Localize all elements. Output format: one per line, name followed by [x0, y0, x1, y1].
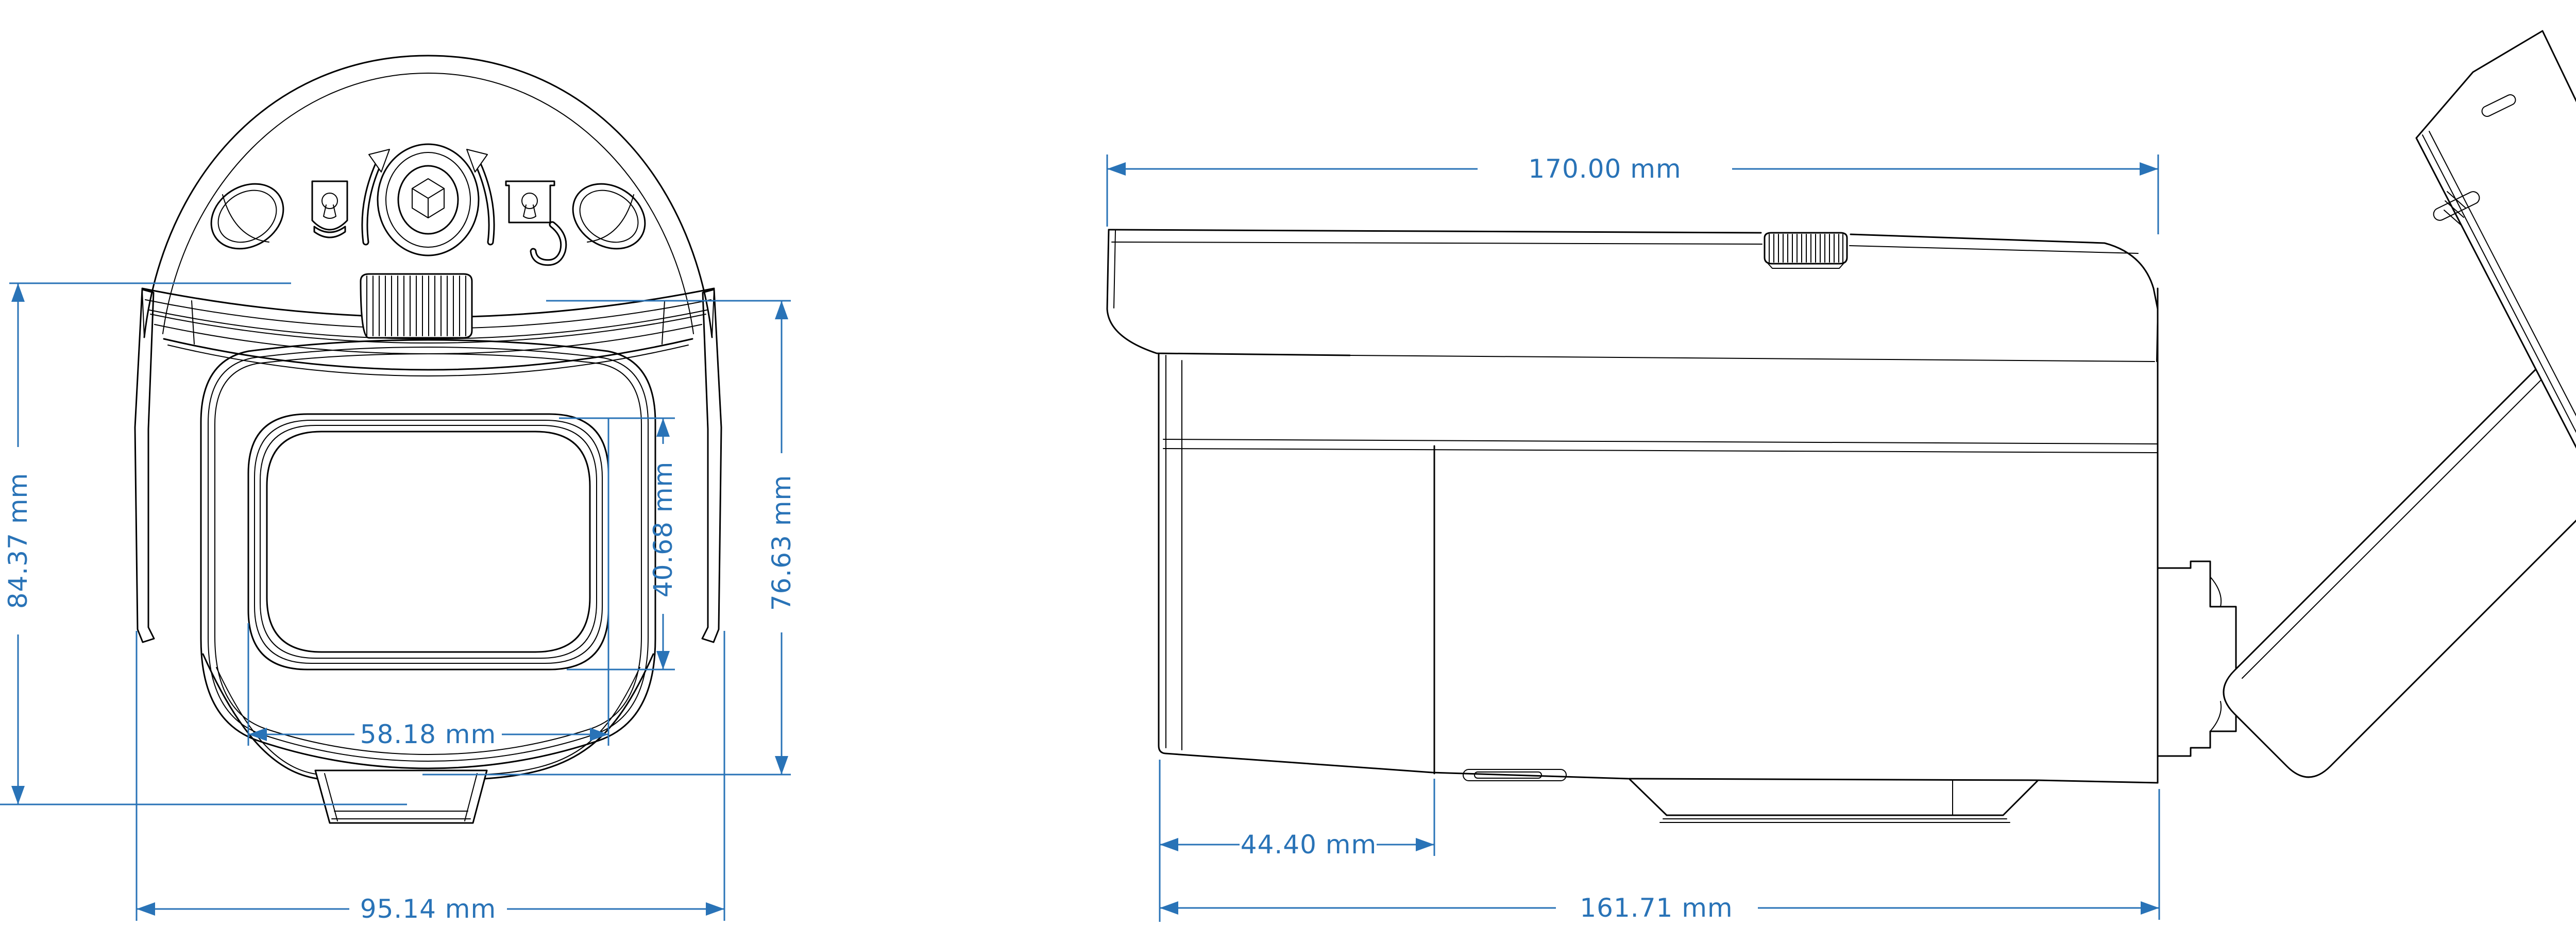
- dim-label-front-section: 44.40 mm: [1241, 830, 1377, 860]
- dim-label-lens-width: 58.18 mm: [360, 719, 496, 749]
- dim-label-housing-height: 76.63 mm: [767, 475, 796, 611]
- dim-label-overall-height: 84.37 mm: [3, 473, 33, 609]
- mount-foot-front: [315, 770, 487, 823]
- lock-closed-icon: [312, 181, 347, 237]
- focus-thumbwheel-front: [361, 274, 472, 338]
- dim-label-housing-length: 161.71 mm: [1580, 893, 1733, 923]
- focus-thumbwheel-side: [1765, 233, 1847, 268]
- dim-label-lens-height: 40.68 mm: [648, 461, 678, 597]
- mount-foot-side: [1629, 779, 2038, 822]
- camera-dimension-drawing: 84.37 mm 76.63 mm 40.68 mm 58.18 mm 95.1…: [0, 0, 2576, 927]
- dim-label-overall-width: 95.14 mm: [360, 894, 496, 924]
- adjustment-knob: [378, 144, 479, 255]
- dim-label-overall-length: 170.00 mm: [1528, 154, 1681, 184]
- lens-window: [248, 414, 608, 669]
